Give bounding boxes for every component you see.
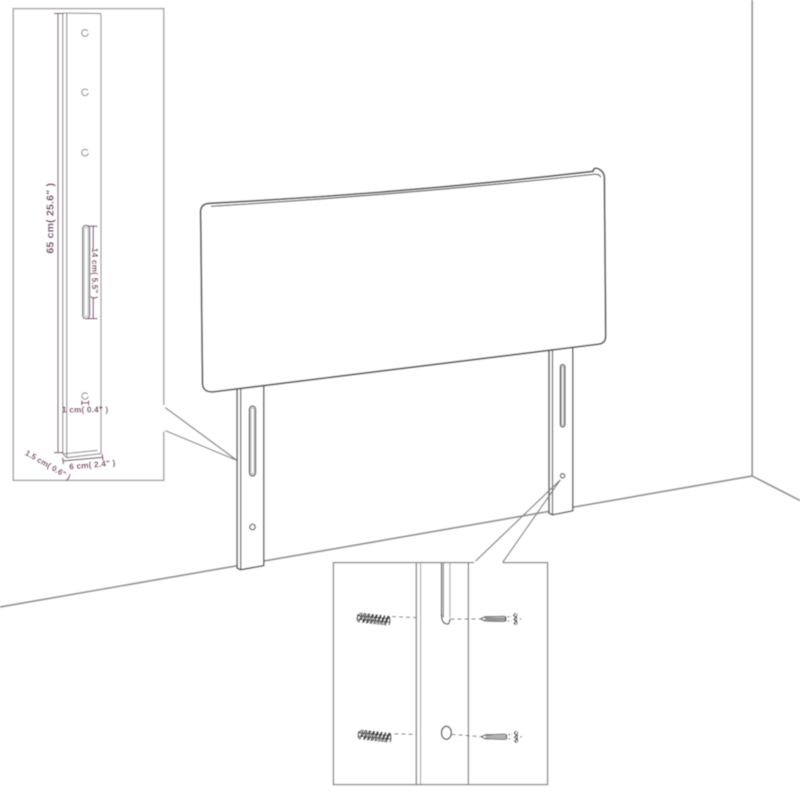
svg-text:1 cm( 0.4" ): 1 cm( 0.4" ) bbox=[62, 406, 108, 415]
svg-text:14 cm( 5.5" ): 14 cm( 5.5" ) bbox=[90, 248, 99, 299]
svg-text:65 cm( 25.6" ): 65 cm( 25.6" ) bbox=[45, 183, 57, 254]
